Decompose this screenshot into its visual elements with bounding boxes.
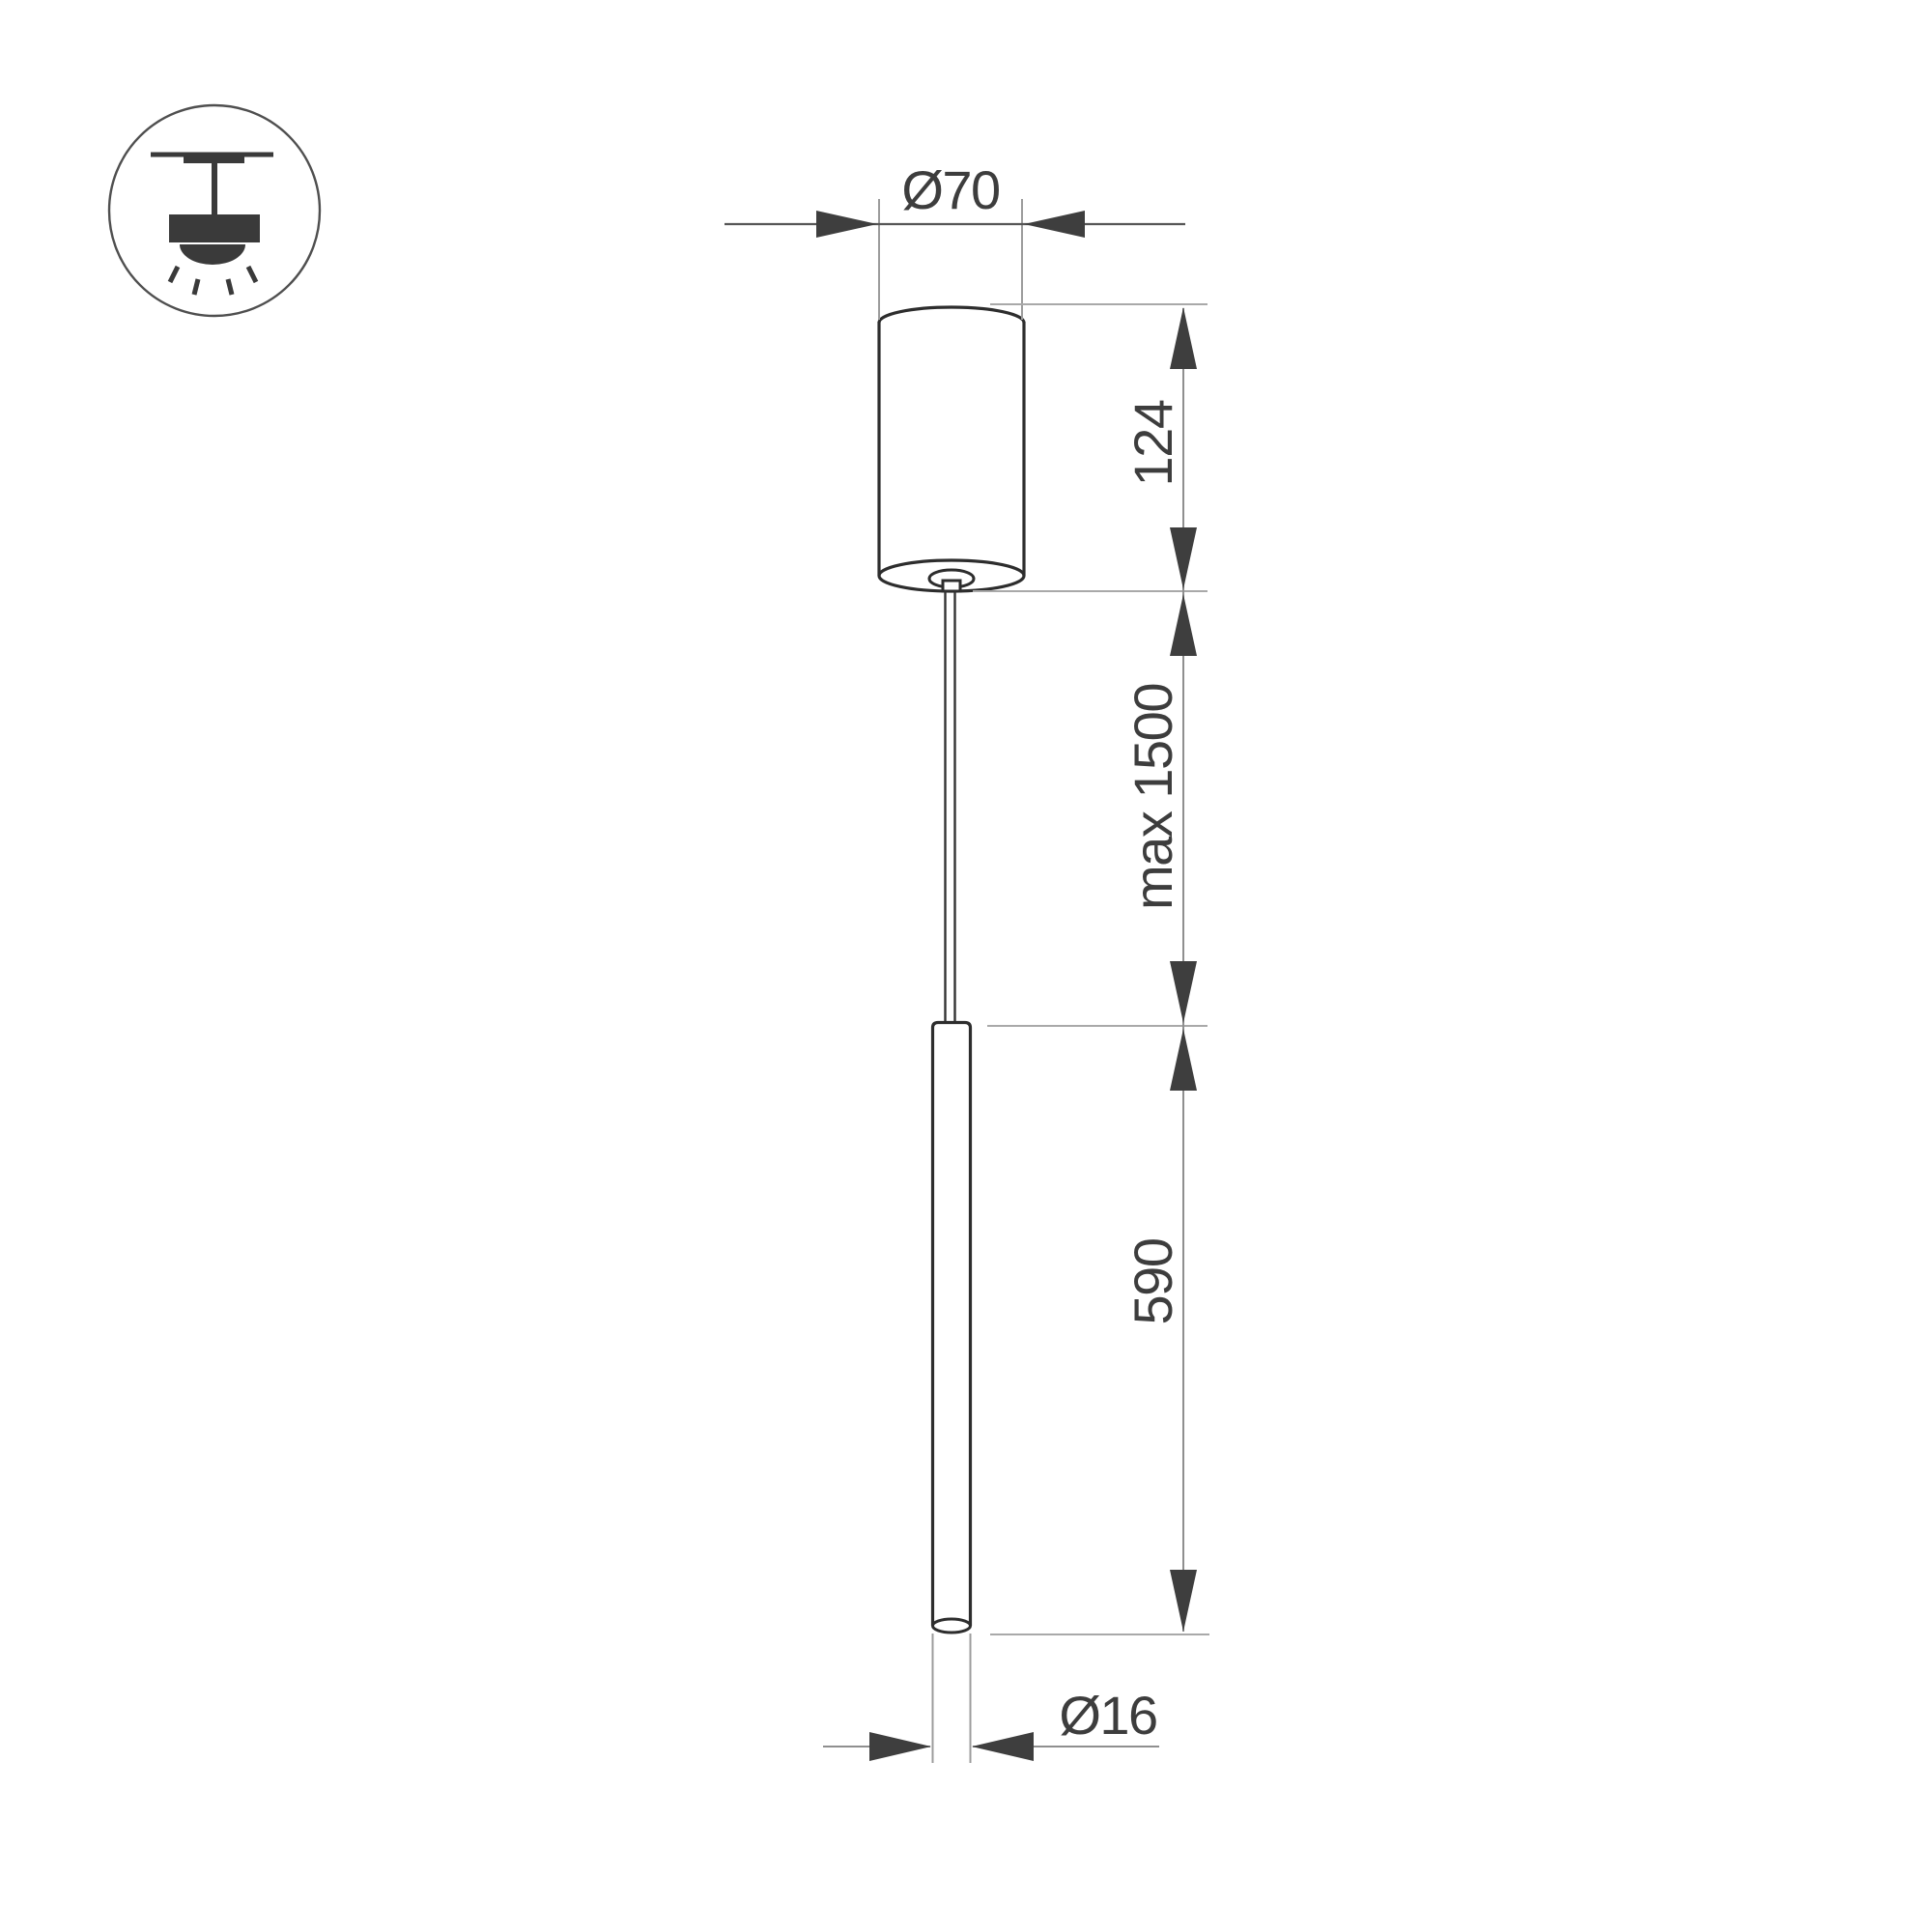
dim-tube-diameter: Ø16 <box>823 1634 1159 1763</box>
icon-lamp-body <box>169 214 260 242</box>
arrow-down-icon <box>1170 1570 1197 1632</box>
arrow-up-icon <box>1170 307 1197 369</box>
arrow-left-icon <box>972 1732 1034 1761</box>
arrow-down-icon <box>1170 961 1197 1023</box>
arrow-down-icon <box>1170 527 1197 589</box>
drawing-canvas: Ø70 124 max 1500 590 <box>0 0 1932 1932</box>
label-canopy-height: 124 <box>1122 400 1183 486</box>
tube-bottom-rim <box>933 1619 971 1633</box>
label-suspension-length: max 1500 <box>1122 684 1183 910</box>
label-canopy-diameter: Ø70 <box>901 159 999 220</box>
pendant-light-icon <box>109 105 320 316</box>
arrow-right-icon <box>816 211 877 238</box>
label-tube-length: 590 <box>1122 1239 1183 1325</box>
dim-vertical-chain: 124 max 1500 590 <box>973 304 1209 1634</box>
dim-canopy-diameter: Ø70 <box>724 159 1185 320</box>
cable-grommet-stem <box>943 581 960 591</box>
icon-light-rays <box>170 267 256 295</box>
icon-suspension-stem <box>212 160 217 216</box>
technical-drawing: Ø70 124 max 1500 590 <box>0 0 1932 1932</box>
label-tube-diameter: Ø16 <box>1059 1685 1156 1746</box>
led-tube <box>933 1023 971 1634</box>
canopy <box>879 307 1024 591</box>
arrow-right-icon <box>869 1732 931 1761</box>
arrow-up-icon <box>1170 1029 1197 1091</box>
suspension-wire <box>946 591 955 1022</box>
arrow-up-icon <box>1170 594 1197 656</box>
arrow-left-icon <box>1024 211 1085 238</box>
icon-light-dome <box>180 244 245 265</box>
canopy-top-arc <box>879 307 1024 323</box>
tube-body <box>933 1023 971 1627</box>
